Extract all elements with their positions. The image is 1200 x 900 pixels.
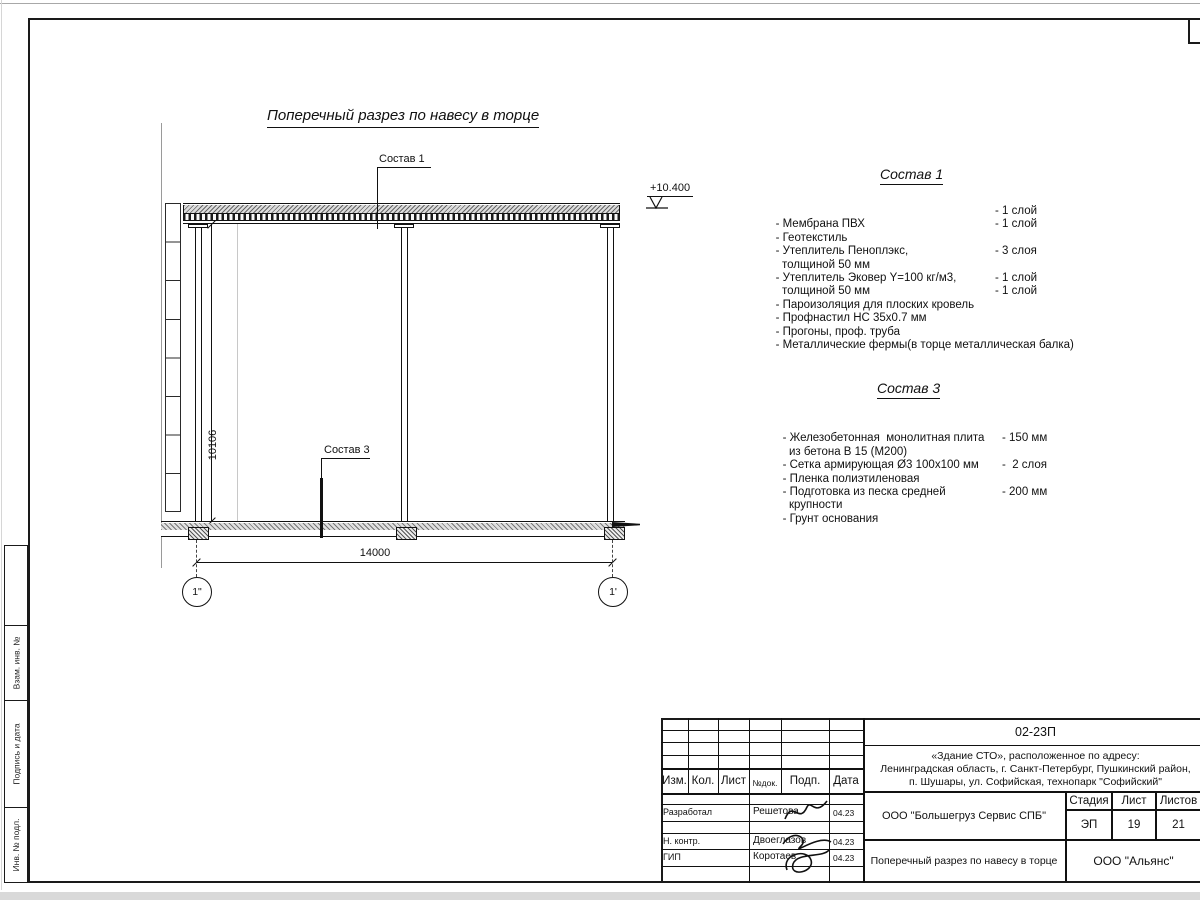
- roof-slab: [183, 203, 620, 224]
- stamp-header-ndok: №док.: [749, 778, 781, 788]
- ladder-strip: [165, 203, 181, 512]
- stamp-date-gip: 04.23: [833, 853, 854, 863]
- stamp-hline: [661, 742, 863, 743]
- material-row: - Пленка полиэтиленовая - 2 слоя: [757, 459, 1097, 472]
- stamp-hline: [661, 804, 863, 805]
- material-row: - Мембрана ПВХ - 1 слой: [750, 205, 1090, 218]
- stamp-left-grid: Изм. Кол. Лист №док. Подп. Дата Разработ…: [661, 718, 863, 883]
- stamp-company: ООО "Большегруз Сервис СПБ": [863, 793, 1067, 841]
- projection-line: [237, 224, 238, 521]
- address-line: п. Шушары, ул. Софийская, технопарк "Соф…: [863, 776, 1200, 789]
- material-row: - Подготовка из песка средней: [757, 473, 1097, 486]
- margin-box-empty: [4, 545, 28, 626]
- foundation-block: [604, 527, 625, 540]
- adjacent-wall-line: [161, 123, 162, 568]
- leader1-line: [377, 167, 378, 229]
- dim-horizontal-text: 14000: [320, 547, 430, 559]
- dim-h-line: [196, 562, 612, 563]
- stamp-hline: [661, 821, 863, 822]
- stamp-role-razrabotal: Разработал: [663, 807, 712, 817]
- material-row: - Грунт основания: [757, 499, 1097, 512]
- material-qty: - 2 слоя: [1002, 459, 1047, 472]
- stage-header-stadia: Стадия: [1067, 793, 1113, 811]
- stamp-doc-number: 02-23П: [863, 718, 1200, 746]
- stamp-sheet-title: Поперечный разрез по навесу в торце: [863, 841, 1067, 881]
- leader1-shelf: [377, 167, 431, 168]
- dim-vertical-text: 10106: [207, 418, 219, 472]
- page-top-edge: [0, 3, 1200, 4]
- floor-slab: [161, 521, 625, 537]
- stage-value-list: 19: [1113, 811, 1157, 841]
- stamp-role-nkontr: Н. контр.: [663, 836, 700, 846]
- leader3-shelf: [321, 458, 370, 459]
- material-qty: - 200 мм: [1002, 486, 1047, 499]
- signature-nkontr-gip: [779, 826, 835, 880]
- column-right: [607, 228, 614, 521]
- foundation-block: [188, 527, 209, 540]
- axis-line-left: [196, 540, 197, 577]
- view-title: Поперечный разрез по навесу в торце: [267, 107, 539, 128]
- stamp-date-nkontr: 04.23: [833, 837, 854, 847]
- material-row: - Прогоны, проф. труба: [750, 312, 1090, 325]
- material-qty: - 1 слой: [995, 272, 1037, 285]
- corner-box: [1188, 18, 1200, 44]
- axis-bubble-left: 1": [182, 577, 212, 607]
- stage-header-listov: Листов: [1157, 793, 1200, 811]
- material-qty: - 150 мм: [1002, 432, 1047, 445]
- material-row: - Металлические фермы(в торце металличес…: [750, 326, 1090, 339]
- sostav1-list: - Мембрана ПВХ - 1 слой - Геотекстиль - …: [750, 205, 1090, 339]
- material-name: - Металлические фермы(в торце металличес…: [776, 339, 1074, 351]
- material-row: - Сетка армирующая Ø3 100x100 мм: [757, 446, 1097, 459]
- axis-bubble-right: 1': [598, 577, 628, 607]
- stage-value-listov: 21: [1157, 811, 1200, 841]
- stamp-hline: [661, 768, 863, 770]
- material-row: - Профнастил НС 35х0.7 мм: [750, 299, 1090, 312]
- material-row: - Железобетонная монолитная плита: [757, 419, 1097, 432]
- stamp-hline: [661, 793, 863, 795]
- drawing-sheet: Взам. инв. № Подпись и дата Инв. № подл.…: [0, 0, 1200, 900]
- material-row: - Пароизоляция для плоских кровель - 1 с…: [750, 285, 1090, 298]
- material-qty: - 1 слой: [995, 285, 1037, 298]
- margin-label-inv: Инв. № подл.: [10, 807, 22, 883]
- roof-insulation-hatch: [183, 205, 620, 213]
- stamp-hline: [661, 755, 863, 756]
- stamp-header-podp: Подп.: [781, 775, 829, 787]
- roof-deck-band: [183, 213, 620, 221]
- material-qty: - 1 слой: [995, 218, 1037, 231]
- material-row: толщиной 50 мм - 1 слой: [750, 272, 1090, 285]
- material-row: из бетона В 15 (М200) - 150 мм: [757, 432, 1097, 445]
- stamp-header-data: Дата: [829, 775, 863, 787]
- sostav3-list: - Железобетонная монолитная плита из бет…: [757, 419, 1097, 513]
- material-row: - Утеплитель Эковер Y=100 кг/м3,: [750, 259, 1090, 272]
- material-name: - Грунт основания: [783, 513, 879, 525]
- leader3-line-thick: [320, 478, 323, 538]
- margin-label-podpis: Подпись и дата: [10, 700, 22, 807]
- leader3-label: Состав 3: [324, 444, 370, 456]
- axis-line-right: [612, 540, 613, 577]
- material-row: - Геотекстиль - 1 слой: [750, 218, 1090, 231]
- sostav3-heading: Состав 3: [877, 380, 940, 399]
- stamp-org: ООО "Альянс": [1067, 841, 1200, 881]
- stage-value-stadia: ЭП: [1067, 811, 1113, 841]
- stamp-address: «Здание СТО», расположенное по адресу: Л…: [863, 746, 1200, 793]
- leader1-label: Состав 1: [379, 153, 425, 165]
- margin-label-vzam: Взам. инв. №: [10, 625, 22, 700]
- column-left: [195, 228, 202, 521]
- material-row: - Утеплитель Пеноплэкс,: [750, 232, 1090, 245]
- elevation-arrow-icon: [644, 195, 674, 211]
- floor-sand-band: [161, 530, 625, 537]
- material-qty: - 1 слой: [995, 205, 1037, 218]
- stamp-date-razrabotal: 04.23: [833, 808, 854, 818]
- stamp-hline: [661, 730, 863, 731]
- signature-razrabotal: [783, 795, 829, 825]
- stamp-header-kol: Кол.: [688, 775, 718, 787]
- material-row: толщиной 50 мм - 3 слоя: [750, 245, 1090, 258]
- stamp-header-list: Лист: [718, 775, 749, 787]
- page-left-edge: [1, 0, 2, 890]
- sostav1-heading: Состав 1: [880, 166, 943, 185]
- foundation-block: [396, 527, 417, 540]
- dim-v-line: [211, 224, 212, 521]
- stamp-header-izm: Изм.: [661, 775, 688, 787]
- material-row: крупности - 200 мм: [757, 486, 1097, 499]
- material-qty: - 3 слоя: [995, 245, 1037, 258]
- stage-header-list: Лист: [1113, 793, 1157, 811]
- page-bottom-band: [0, 892, 1200, 900]
- address-line: «Здание СТО», расположенное по адресу:: [863, 750, 1200, 763]
- leader3-line-thin: [321, 458, 322, 478]
- stamp-role-gip: ГИП: [663, 852, 681, 862]
- address-line: Ленинградская область, г. Санкт-Петербур…: [863, 763, 1200, 776]
- elevation-text: +10.400: [650, 182, 690, 194]
- column-middle: [401, 228, 408, 521]
- floor-concrete-hatch: [161, 523, 625, 530]
